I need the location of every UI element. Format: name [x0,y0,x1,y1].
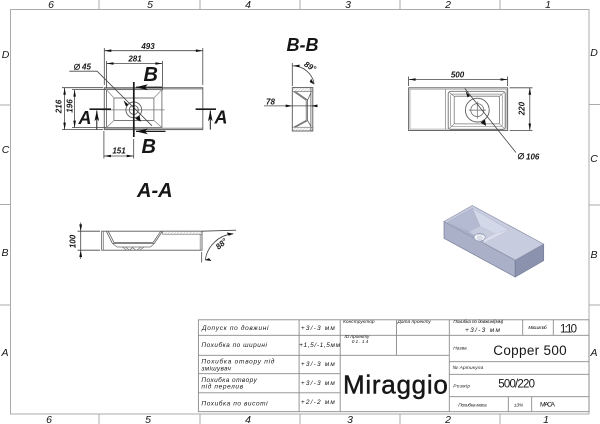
svg-text:A: A [0,347,8,359]
svg-text:Допуск по довжині: Допуск по довжині [201,324,269,332]
svg-text:B: B [142,136,156,158]
svg-text:1: 1 [545,0,551,11]
svg-text:Похибка по висоті: Похибка по висоті [201,400,268,408]
svg-text:3: 3 [347,414,353,424]
svg-text:6: 6 [48,0,54,11]
svg-text:500/220: 500/220 [498,379,535,391]
svg-text:Конструктор: Конструктор [343,319,375,325]
svg-text:3: 3 [345,0,351,11]
svg-text:Масштаб: Масштаб [528,325,547,331]
svg-text:B: B [590,249,597,261]
svg-text:±3%: ±3% [514,402,524,408]
svg-text:2: 2 [444,414,451,424]
svg-text:під перелив: під перелив [201,383,243,391]
svg-text:106: 106 [526,153,540,162]
svg-text:C: C [2,144,10,156]
svg-text:D: D [590,47,598,59]
svg-text:281: 281 [127,55,142,64]
svg-text:Copper 500: Copper 500 [493,343,566,358]
svg-text:220: 220 [518,101,527,116]
svg-text:5: 5 [147,0,153,11]
svg-text:493: 493 [140,42,155,51]
svg-text:A: A [78,108,92,128]
svg-text:+3/-3 мм: +3/-3 мм [301,361,336,368]
svg-text:100: 100 [68,234,77,248]
svg-text:+2/-2 мм: +2/-2 мм [301,399,336,406]
svg-text:Розмір: Розмір [453,384,470,390]
svg-text:1:10: 1:10 [560,323,577,335]
svg-text:45: 45 [81,63,91,72]
svg-text:A: A [589,347,597,359]
svg-text:A: A [214,107,228,127]
svg-text:Похибка по довжині(мм): Похибка по довжині(мм) [453,319,503,325]
svg-text:6: 6 [46,414,52,424]
svg-text:МАСА: МАСА [540,401,555,408]
svg-text:196: 196 [66,99,75,113]
svg-text:Похибка маса: Похибка маса [458,402,487,408]
svg-text:C: C [590,153,598,165]
svg-text:01.14: 01.14 [352,339,369,345]
svg-text:+1,5/-1,5мм: +1,5/-1,5мм [299,342,341,349]
svg-text:4: 4 [245,0,251,11]
svg-text:Miraggio: Miraggio [343,370,448,400]
svg-text:500: 500 [451,71,465,80]
svg-text:Дата проекту: Дата проекту [397,319,432,325]
svg-text:B: B [144,64,158,86]
svg-text:№ Артикула: № Артикула [453,365,484,371]
svg-text:+3/-3 мм: +3/-3 мм [301,325,336,332]
svg-text:78: 78 [266,97,275,106]
svg-text:Похибка по ширині: Похибка по ширині [201,341,267,349]
svg-text:B-B: B-B [287,35,319,55]
svg-text:216: 216 [55,99,64,114]
svg-text:+3/-3 мм: +3/-3 мм [465,327,501,334]
svg-text:5: 5 [145,414,151,424]
svg-text:+3/-3 мм: +3/-3 мм [301,380,336,387]
svg-text:D: D [2,49,10,61]
svg-text:1: 1 [543,414,549,424]
svg-text:Назва: Назва [453,346,467,352]
svg-text:A-A: A-A [136,180,173,202]
svg-text:B: B [1,247,8,259]
svg-text:151: 151 [112,147,126,156]
svg-text:4: 4 [245,414,251,424]
svg-text:змішувач: змішувач [200,364,231,372]
svg-text:2: 2 [444,0,451,11]
